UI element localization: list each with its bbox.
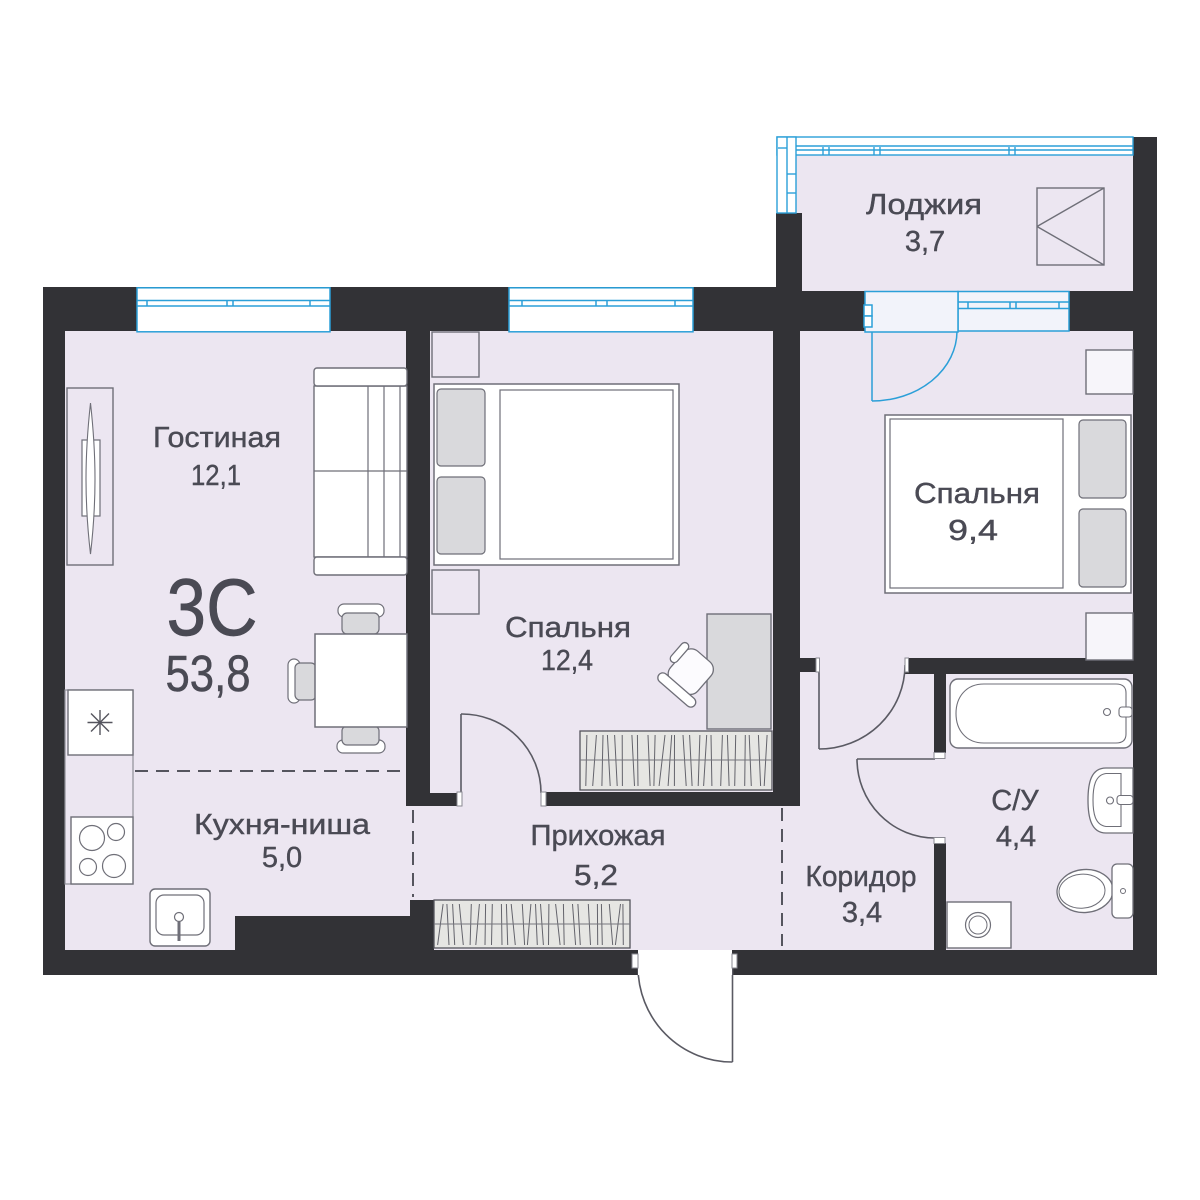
svg-text:Лоджия: Лоджия: [866, 189, 982, 221]
svg-text:12,4: 12,4: [541, 645, 593, 677]
svg-text:53,8: 53,8: [166, 645, 251, 702]
svg-text:Спальня: Спальня: [505, 612, 631, 644]
svg-text:12,1: 12,1: [191, 460, 241, 492]
svg-text:5,0: 5,0: [262, 842, 302, 874]
svg-text:Коридор: Коридор: [806, 861, 917, 893]
svg-text:С/У: С/У: [991, 785, 1039, 817]
svg-text:9,4: 9,4: [948, 515, 998, 547]
svg-text:3,7: 3,7: [905, 226, 945, 258]
svg-text:3С: 3С: [167, 563, 258, 653]
svg-text:Прихожая: Прихожая: [531, 820, 666, 852]
svg-text:Спальня: Спальня: [914, 478, 1040, 510]
svg-text:Кухня-ниша: Кухня-ниша: [194, 809, 371, 841]
svg-text:4,4: 4,4: [996, 821, 1036, 853]
svg-text:Гостиная: Гостиная: [153, 422, 281, 454]
svg-text:5,2: 5,2: [574, 860, 618, 892]
svg-text:3,4: 3,4: [842, 897, 882, 929]
